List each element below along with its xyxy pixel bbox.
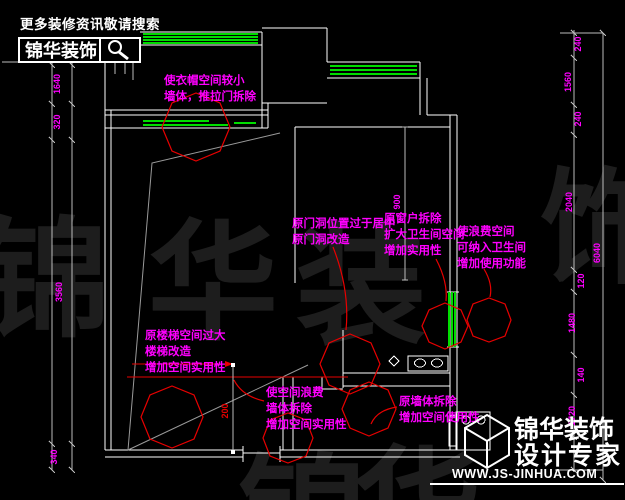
- annotation-stairs: 增加空间实用性: [145, 360, 226, 374]
- footer-url: WWW.JS-JINHUA.COM: [452, 467, 597, 481]
- dim-right: 140: [576, 367, 586, 382]
- annotation-door: 原门洞位置过于居中: [292, 216, 396, 230]
- revision-cloud-sliding-door: [162, 93, 230, 161]
- annotation-cloakroom: 墙体，推拉门拆除: [164, 89, 256, 103]
- dim-right: 1480: [567, 313, 577, 333]
- annotation-waste: 使空间浪费: [265, 385, 324, 399]
- dim-right: 240: [573, 111, 583, 126]
- annotation-window: 增加实用性: [384, 243, 442, 257]
- annotation-window: 原窗户拆除: [384, 211, 442, 225]
- revision-cloud-stairs: [141, 386, 203, 448]
- dim-removed-wall: 200: [220, 403, 230, 418]
- annotation-wall: 增加空间使用性: [399, 410, 480, 424]
- annotation-corner: 使浪费空间: [456, 224, 515, 238]
- footer-subtitle: 设计专家: [514, 441, 622, 470]
- dim-right-total: 6040: [592, 243, 602, 263]
- dim-inner: 900: [392, 194, 402, 209]
- annotation-waste: 墙体拆除: [266, 401, 312, 415]
- annotation-cloakroom: 使衣帽空间较小: [163, 73, 245, 87]
- annotation-door: 原门洞改造: [292, 232, 350, 246]
- basin-icon: [415, 359, 426, 367]
- watermark-row-2: 锦 华: [238, 436, 482, 500]
- dim-right: 240: [573, 36, 583, 51]
- leader-window: [436, 259, 446, 301]
- window-top-left: [143, 34, 258, 43]
- basin-icon: [432, 359, 443, 367]
- cad-floorplan-screenshot: 锦 华 装 饰 锦 华: [0, 0, 625, 500]
- watermark-row-1: 锦 华 装 饰: [0, 160, 625, 360]
- annotation-stairs: 原楼梯空间过大: [145, 328, 226, 342]
- header-tagline: 更多装修资讯敬请搜索: [20, 16, 160, 32]
- dim-left: 1640: [52, 74, 62, 94]
- annotation-wall: 原墙体拆除: [399, 394, 457, 408]
- brand-name: 锦华装饰: [25, 40, 97, 61]
- revision-cloud-corner: [467, 298, 511, 342]
- floorplan-canvas: 锦 华 装 饰 锦 华: [0, 0, 625, 500]
- dim-marker: [231, 450, 235, 454]
- window-top-right: [330, 66, 417, 74]
- dim-marker: [231, 363, 235, 367]
- annotation-waste: 增加空间实用性: [266, 417, 347, 431]
- dim-left: 340: [49, 449, 59, 464]
- annotation-window: 扩大卫生间空间: [384, 227, 465, 241]
- annotation-corner: 增加使用功能: [457, 256, 526, 270]
- annotation-stairs: 楼梯改造: [145, 344, 191, 358]
- header-brand: 更多装修资讯敬请搜索 锦华装饰: [19, 16, 160, 62]
- dim-right: 1560: [563, 72, 573, 92]
- watermark-glyph: 锦: [238, 444, 368, 500]
- sliding-door-green: [143, 121, 256, 125]
- annotation-corner: 可纳入卫生间: [457, 240, 526, 254]
- leader-corner: [484, 269, 491, 297]
- watermark-glyph: 锦: [0, 207, 110, 353]
- dim-right: 120: [576, 273, 586, 288]
- footer-brand: 锦华装饰: [514, 415, 614, 444]
- search-icon: [109, 41, 128, 59]
- dim-left: 3560: [54, 282, 64, 302]
- dim-left: 320: [52, 114, 62, 129]
- revision-cloud-window: [422, 303, 468, 349]
- dim-right: 2040: [564, 192, 574, 212]
